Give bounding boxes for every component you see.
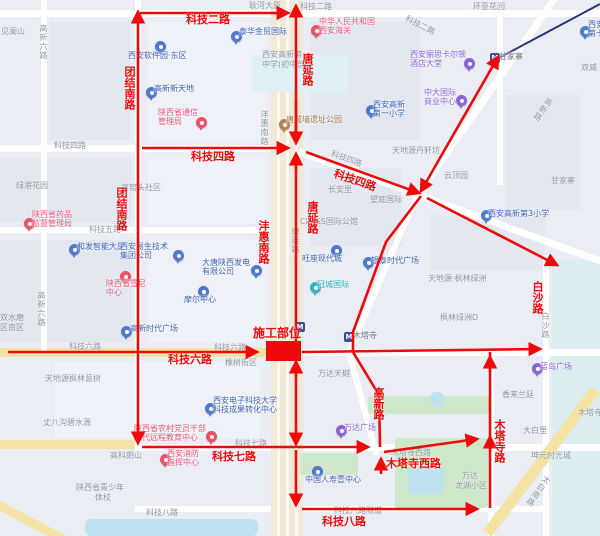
map-label: 科技七路 xyxy=(235,439,267,448)
poi-label: 西安软件园·东区 xyxy=(128,51,187,60)
poi-pin-icon[interactable] xyxy=(173,250,184,261)
map-label: 科技四路 xyxy=(54,141,86,150)
map-label: 科技八路隧道 xyxy=(334,506,382,515)
poi-label: 中国人寿壹中心 xyxy=(305,475,361,484)
map-label: 沣惠南路 xyxy=(260,110,269,146)
map-label: 天地源枫林意树 xyxy=(45,374,101,383)
map-label: 唐延路 xyxy=(291,227,300,254)
map-label: 区南区 xyxy=(0,323,24,332)
red-road-label: 科技六路 xyxy=(168,354,212,366)
poi-label: 西安易生技术集团公司 xyxy=(120,242,168,260)
poi-label: 中大国际商业中心 xyxy=(424,88,456,106)
red-road-label: 白沙路 xyxy=(531,281,543,314)
red-road-label: 木塔寺西路 xyxy=(386,458,441,470)
poi-label: 陕西省雪尼中心 xyxy=(106,279,146,297)
map-label: 天地源·枫林绿洲 xyxy=(428,274,487,283)
map-label: 望庭国际 xyxy=(370,195,402,204)
poi-label: 和发智能大厦 xyxy=(77,242,125,251)
poi-label: 西安电子科技大学科技成果转化中心 xyxy=(213,396,277,414)
map-label: 体校 xyxy=(95,493,111,502)
map-label: 橡树街区 xyxy=(225,358,257,367)
red-road-label: 高新路 xyxy=(372,387,384,420)
poi-label: 中华人民共和国西安海关 xyxy=(319,17,375,35)
map-label: 木塔寺 xyxy=(578,408,600,417)
poi-label: 高新时代广场 xyxy=(130,324,178,333)
red-road-label: 木塔寺路 xyxy=(493,419,505,463)
map-label: 天地源丹轩坊 xyxy=(392,146,440,155)
map-label: 枫林绿洲D xyxy=(440,313,478,322)
map-label: 双水磨 xyxy=(0,313,24,322)
map-label: 绿港花园 xyxy=(16,181,48,190)
map-label: 万达天樾 xyxy=(318,369,350,378)
poi-label: 万达广场 xyxy=(344,423,376,432)
poi-label: 西安高新第一小学 xyxy=(373,100,405,118)
red-road-label: 团结南路 xyxy=(123,66,135,110)
construction-site-label: 施工部位 xyxy=(253,327,301,339)
road-southwest-corner xyxy=(0,498,70,536)
poi-label: 西安丽思卡尔顿酒店大堂 xyxy=(410,50,466,68)
red-road-label: 唐延路 xyxy=(301,53,313,86)
small-pond xyxy=(430,392,444,407)
road-west-bend xyxy=(0,440,138,449)
road-ganjiazhai xyxy=(497,0,503,185)
map-label: 科技六路 xyxy=(69,342,101,351)
poi-label: 旺座现代城 xyxy=(302,254,342,263)
poi-label: 银泰时代广场 xyxy=(371,256,419,265)
poi-pin-icon[interactable] xyxy=(251,265,262,276)
poi-label: 冠城国际 xyxy=(317,280,349,289)
map-label: 龙湖小区 xyxy=(455,481,487,490)
poi-label: 陕西省农村党员干部现代远程教育中心 xyxy=(134,424,206,442)
map-label: 白沙路 xyxy=(541,312,550,339)
city-block xyxy=(50,22,130,140)
map-label: 云顶园 xyxy=(444,171,468,180)
poi-label: 大唐陕西发电有限公司 xyxy=(202,258,250,276)
poi-label: 西安消防指挥中心 xyxy=(167,449,199,467)
road-keji-7 xyxy=(135,444,600,451)
red-road-label: 团结南路 xyxy=(115,187,127,231)
park-strip xyxy=(368,396,490,414)
map-label: 双威 xyxy=(581,63,597,72)
map-label: 科技六路 xyxy=(214,343,246,352)
map-label: 万达 xyxy=(462,471,478,480)
poi-label: 唐城墙遗址公园 xyxy=(286,115,342,124)
poi-label: 陕西省药品监督管理局 xyxy=(32,210,72,228)
park-pond xyxy=(408,466,444,494)
poi-label: 蓝岛广场 xyxy=(540,362,572,371)
map-canvas[interactable]: 见阑山高新六路耿河大厦科技二路科技二路环亚花园双威高新路云顶园甘家寨天地源丹轩坊… xyxy=(0,0,600,536)
map-label: 耿河大厦 xyxy=(249,1,281,10)
poi-label: 摩尔中心 xyxy=(184,295,216,304)
map-label: 木塔寺西路 xyxy=(391,448,431,457)
red-road-label: 沣惠南路 xyxy=(257,220,269,264)
map-label: 科技二路 xyxy=(300,2,332,11)
poi-pin-icon[interactable] xyxy=(456,95,467,106)
map-label: 长安里 xyxy=(328,185,352,194)
map-label: 坤元时光城 xyxy=(531,451,571,460)
map-label: 丈八沟碧水源 xyxy=(43,418,91,427)
poi-label: 甘家寨 xyxy=(499,52,523,61)
map-label: 香来兰廷 xyxy=(502,390,534,399)
poi-label: 陕西省通信管理局 xyxy=(158,108,198,126)
poi-label: 高新新天地 xyxy=(154,84,194,93)
map-label: 高科朗山 xyxy=(110,451,142,460)
map-label: 高新六路 xyxy=(37,291,46,327)
poi-label: 西安高新第3小学 xyxy=(488,209,549,218)
red-road-label: 科技二路 xyxy=(186,14,230,26)
poi-label: 西安第十 xyxy=(588,20,600,38)
poi-label: 木塔寺 xyxy=(353,331,377,340)
city-block xyxy=(148,158,266,224)
poi-pin-icon[interactable] xyxy=(206,431,217,442)
map-label: 环亚花园 xyxy=(473,2,505,11)
red-road-label: 科技七路 xyxy=(212,451,256,463)
poi-label: 泰华金贸国际 xyxy=(239,27,287,36)
map-label: 甘家寨 xyxy=(551,176,575,185)
red-road-label: 科技四路 xyxy=(191,151,235,163)
red-road-label: 唐延路 xyxy=(306,201,318,234)
park-patch xyxy=(300,453,358,475)
construction-site-marker xyxy=(266,341,301,361)
map-label: 科技八路 xyxy=(146,508,178,517)
map-label: 陕西省青少年 xyxy=(76,483,124,492)
red-road-label: 科技八路 xyxy=(322,516,366,528)
map-label: 大白里 xyxy=(523,426,547,435)
map-label: 见阑山 xyxy=(1,27,25,36)
map-label: 高新六路 xyxy=(39,24,48,60)
southwest-pond xyxy=(85,519,258,536)
